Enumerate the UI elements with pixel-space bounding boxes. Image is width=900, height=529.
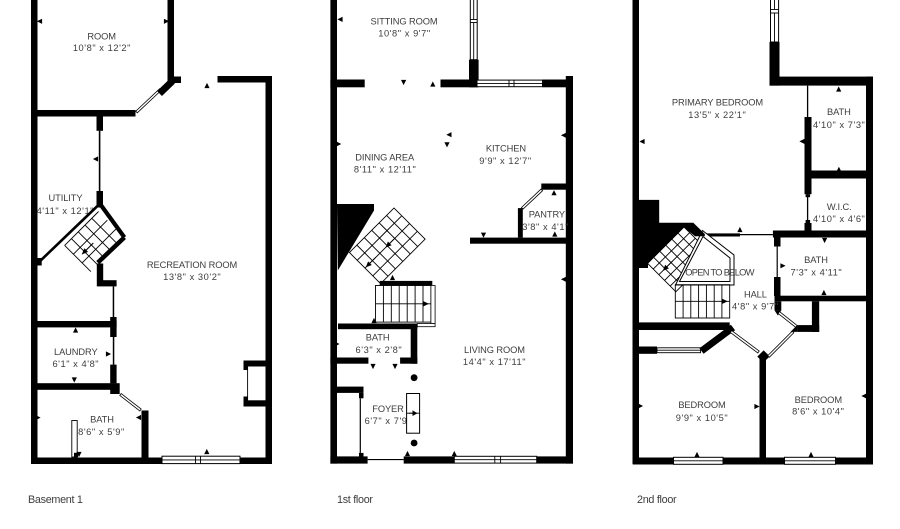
svg-text:Basement 1: Basement 1 <box>28 494 83 506</box>
svg-text:BATH: BATH <box>366 333 390 343</box>
svg-text:KITCHEN: KITCHEN <box>486 144 526 154</box>
svg-text:RECREATION ROOM: RECREATION ROOM <box>147 260 237 270</box>
svg-text:7'3" x 4'11": 7'3" x 4'11" <box>791 267 843 277</box>
svg-text:BEDROOM: BEDROOM <box>795 395 842 405</box>
svg-text:6'3" x 2'8": 6'3" x 2'8" <box>356 345 403 355</box>
svg-text:4'11" x 12'1": 4'11" x 12'1" <box>37 206 94 216</box>
svg-text:W.I.C.: W.I.C. <box>827 202 852 212</box>
svg-text:9'9" x 12'7": 9'9" x 12'7" <box>479 156 531 166</box>
svg-text:PANTRY: PANTRY <box>529 210 565 220</box>
svg-text:PRIMARY BEDROOM: PRIMARY BEDROOM <box>672 98 763 108</box>
svg-text:UTILITY: UTILITY <box>49 193 83 203</box>
svg-text:13'5" x 22'1": 13'5" x 22'1" <box>688 110 746 120</box>
svg-text:8'6" x 10'4": 8'6" x 10'4" <box>792 407 844 417</box>
svg-text:6'1" x 4'8": 6'1" x 4'8" <box>52 359 99 369</box>
svg-text:4'10" x 7'3": 4'10" x 7'3" <box>813 120 865 130</box>
svg-text:10'8" x 9'7": 10'8" x 9'7" <box>378 29 430 39</box>
svg-text:BATH: BATH <box>90 414 114 424</box>
svg-text:LIVING ROOM: LIVING ROOM <box>464 345 525 355</box>
svg-text:ROOM: ROOM <box>87 32 116 42</box>
svg-text:LAUNDRY: LAUNDRY <box>54 347 98 357</box>
svg-text:SITTING ROOM: SITTING ROOM <box>371 16 438 26</box>
svg-text:4'8" x 9'7": 4'8" x 9'7" <box>732 301 779 311</box>
svg-text:3'8" x 4'1": 3'8" x 4'1" <box>522 222 569 232</box>
svg-text:6'7" x 7'9": 6'7" x 7'9" <box>365 416 412 426</box>
svg-text:BATH: BATH <box>827 107 851 117</box>
svg-text:OPEN TO BELOW: OPEN TO BELOW <box>685 268 754 278</box>
svg-text:14'4" x 17'11": 14'4" x 17'11" <box>463 357 526 367</box>
svg-text:HALL: HALL <box>744 289 767 299</box>
svg-text:1st floor: 1st floor <box>337 494 373 506</box>
svg-text:8'6" x 5'9": 8'6" x 5'9" <box>78 427 125 437</box>
svg-text:BEDROOM: BEDROOM <box>678 400 725 410</box>
svg-text:FOYER: FOYER <box>372 404 404 414</box>
svg-text:2nd floor: 2nd floor <box>637 494 677 506</box>
svg-text:8'11" x 12'11": 8'11" x 12'11" <box>354 164 416 174</box>
svg-text:4'10" x 4'6": 4'10" x 4'6" <box>813 214 865 224</box>
svg-text:DINING AREA: DINING AREA <box>355 152 415 162</box>
svg-text:10'8" x 12'2": 10'8" x 12'2" <box>73 43 131 53</box>
svg-text:9'9" x 10'5": 9'9" x 10'5" <box>676 413 728 423</box>
svg-text:BATH: BATH <box>804 255 828 265</box>
svg-text:13'8" x 30'2": 13'8" x 30'2" <box>163 272 221 282</box>
